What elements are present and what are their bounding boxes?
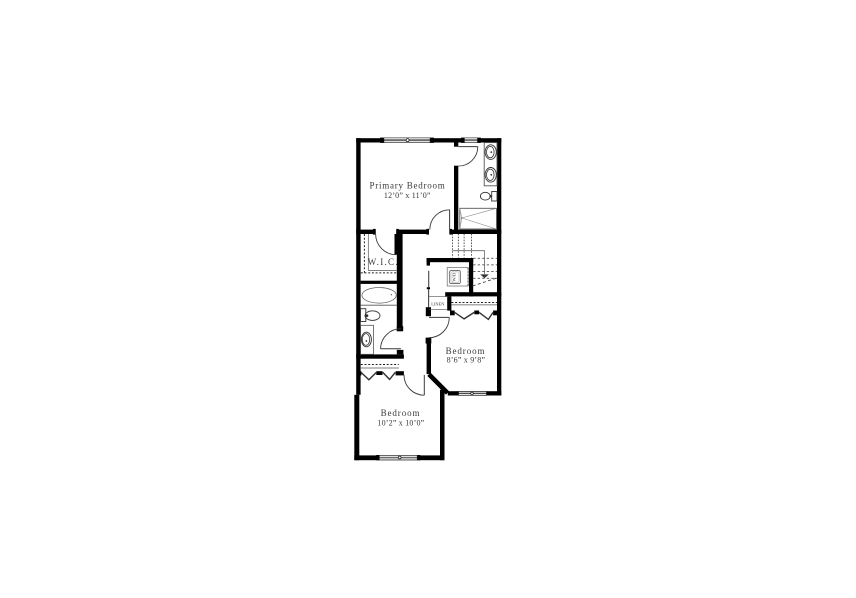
svg-text:Primary Bedroom: Primary Bedroom: [370, 180, 446, 190]
svg-text:W.I.C.: W.I.C.: [368, 257, 399, 267]
svg-text:Bedroom: Bedroom: [381, 408, 421, 418]
svg-text:LINEN: LINEN: [431, 302, 445, 307]
svg-text:8’6” x 9’8”: 8’6” x 9’8”: [447, 356, 486, 365]
svg-text:Bedroom: Bedroom: [446, 346, 486, 356]
svg-text:W/D: W/D: [451, 272, 456, 282]
svg-text:10’2” x 10’0”: 10’2” x 10’0”: [377, 419, 424, 428]
svg-text:12’0” x 11’0”: 12’0” x 11’0”: [384, 191, 431, 200]
